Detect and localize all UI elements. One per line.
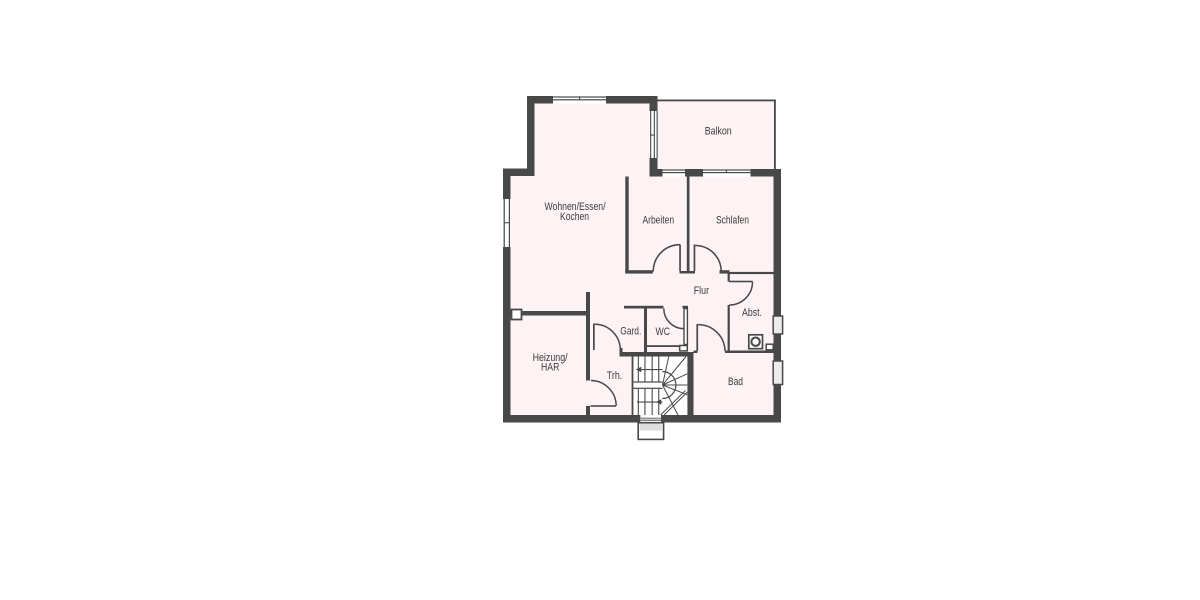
svg-text:Balkon: Balkon <box>705 126 732 138</box>
svg-text:Schlafen: Schlafen <box>716 214 749 226</box>
svg-text:Flur: Flur <box>694 285 710 297</box>
svg-text:Trh.: Trh. <box>607 370 623 382</box>
svg-text:Abst.: Abst. <box>742 307 762 319</box>
svg-text:Bad: Bad <box>728 376 743 388</box>
svg-text:Gard.: Gard. <box>620 325 641 337</box>
svg-text:Kochen: Kochen <box>560 211 589 223</box>
svg-text:HAR: HAR <box>541 361 560 373</box>
svg-text:WC: WC <box>656 326 671 338</box>
svg-text:Arbeiten: Arbeiten <box>642 214 674 226</box>
